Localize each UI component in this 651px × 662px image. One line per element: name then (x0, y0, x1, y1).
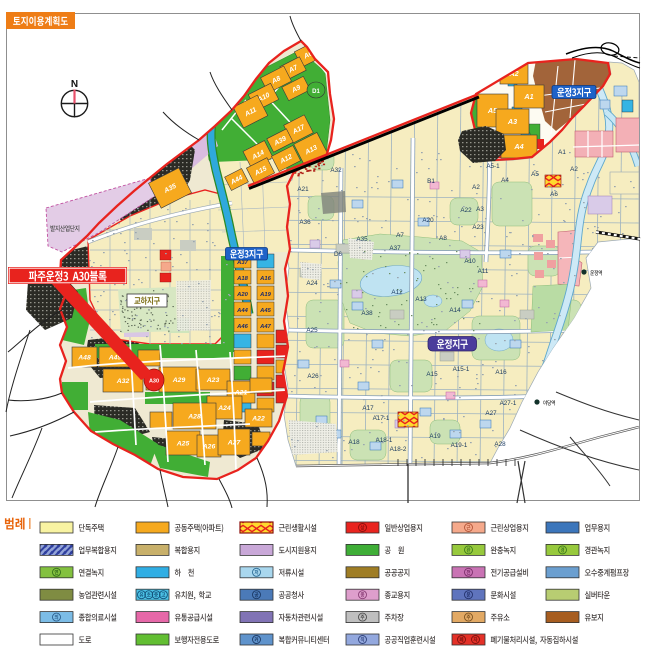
svg-text:A19: A19 (429, 433, 441, 440)
svg-text:A17: A17 (362, 405, 374, 412)
svg-text:A48: A48 (77, 354, 91, 361)
svg-text:A45: A45 (259, 308, 271, 314)
svg-text:A2: A2 (472, 184, 480, 191)
svg-text:A38: A38 (361, 310, 373, 317)
svg-text:A24: A24 (306, 280, 318, 287)
svg-text:A27-1: A27-1 (500, 400, 517, 407)
svg-text:A11: A11 (478, 268, 489, 275)
svg-text:D6: D6 (334, 251, 343, 258)
svg-text:A20: A20 (236, 292, 248, 298)
svg-text:A47: A47 (259, 324, 271, 330)
svg-text:A3: A3 (476, 206, 484, 213)
svg-text:A16: A16 (259, 276, 271, 282)
svg-text:A16: A16 (495, 369, 507, 376)
svg-text:A4: A4 (501, 177, 509, 184)
svg-text:A36: A36 (299, 219, 311, 226)
svg-text:A6: A6 (550, 191, 558, 198)
svg-text:A25: A25 (176, 440, 190, 447)
svg-text:A5: A5 (531, 171, 539, 178)
svg-text:A19-1: A19-1 (451, 442, 468, 449)
svg-text:A32: A32 (330, 167, 342, 174)
svg-text:A26: A26 (307, 373, 319, 380)
svg-text:A18-1: A18-1 (376, 437, 393, 444)
svg-text:A19: A19 (259, 292, 271, 298)
svg-text:A23: A23 (206, 377, 220, 384)
svg-text:A23: A23 (472, 224, 484, 231)
svg-text:A17-1: A17-1 (373, 415, 390, 422)
svg-text:A5-1: A5-1 (486, 163, 500, 170)
svg-text:A28: A28 (187, 413, 201, 420)
svg-text:A22: A22 (251, 415, 265, 422)
svg-text:A27: A27 (227, 439, 242, 446)
svg-text:A2: A2 (570, 166, 578, 173)
svg-text:D1: D1 (312, 89, 320, 95)
svg-text:A37: A37 (389, 245, 401, 252)
svg-text:A46: A46 (236, 324, 248, 330)
svg-text:A37: A37 (236, 260, 248, 266)
svg-text:A22: A22 (460, 207, 472, 214)
svg-text:A8: A8 (439, 235, 447, 242)
svg-text:A30: A30 (149, 379, 159, 385)
svg-text:A13: A13 (415, 296, 427, 303)
svg-text:A7: A7 (396, 232, 404, 239)
svg-text:N: N (71, 79, 78, 90)
svg-text:A12: A12 (391, 289, 403, 296)
svg-text:A1: A1 (523, 92, 533, 101)
svg-text:A32: A32 (116, 378, 130, 385)
svg-text:A27: A27 (485, 410, 497, 417)
svg-text:A25: A25 (306, 327, 318, 334)
svg-text:A14: A14 (449, 307, 461, 314)
svg-text:A18: A18 (236, 276, 248, 282)
svg-text:A20: A20 (422, 217, 434, 224)
svg-text:A44: A44 (236, 308, 248, 314)
svg-text:A18: A18 (348, 439, 360, 446)
svg-text:B1: B1 (427, 178, 435, 185)
svg-text:A24: A24 (217, 405, 231, 412)
svg-text:A21: A21 (297, 186, 309, 193)
svg-text:A28: A28 (494, 441, 506, 448)
svg-text:A1: A1 (558, 149, 566, 156)
svg-text:A29: A29 (172, 377, 186, 384)
svg-text:A35: A35 (356, 236, 368, 243)
svg-text:A15-1: A15-1 (453, 366, 470, 373)
svg-text:A3: A3 (507, 117, 517, 126)
svg-text:A18-2: A18-2 (390, 446, 407, 453)
svg-text:A4: A4 (513, 142, 523, 151)
svg-text:A10: A10 (464, 258, 476, 265)
svg-text:A15: A15 (426, 371, 438, 378)
